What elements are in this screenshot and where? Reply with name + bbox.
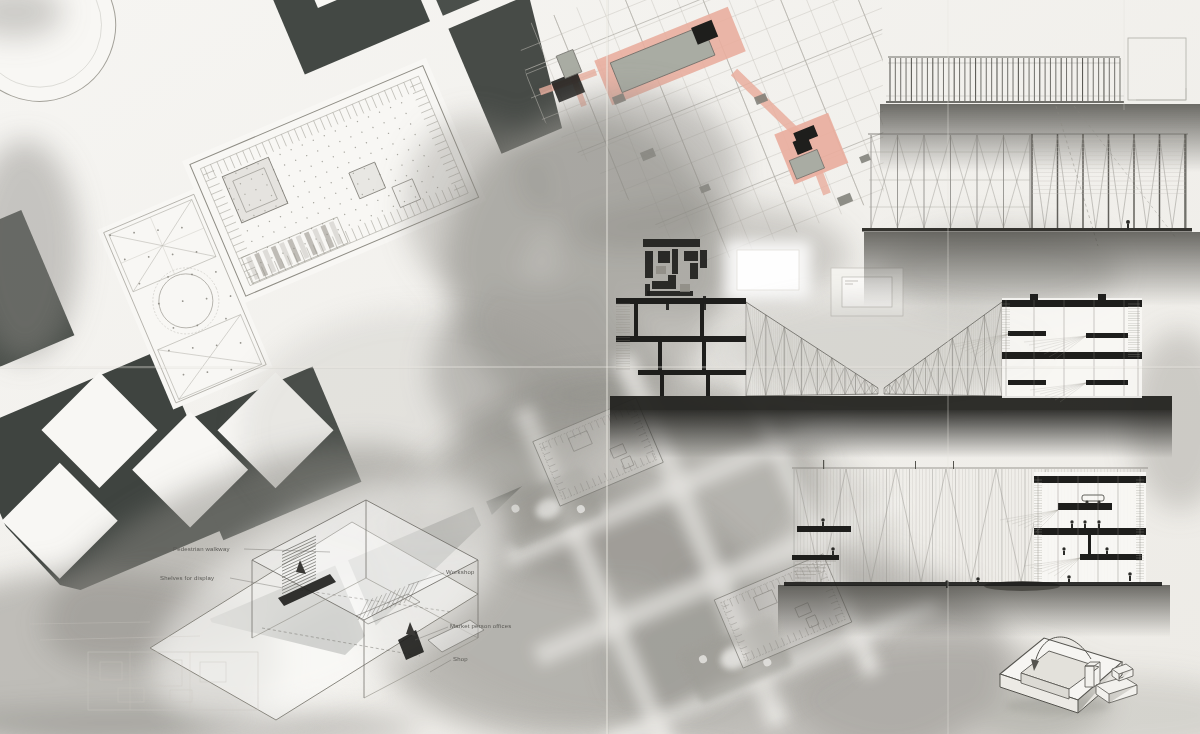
plan-fragment-block: [658, 251, 670, 263]
figure-body: [1068, 579, 1070, 584]
floor-slab: [1034, 528, 1146, 535]
figure-body: [822, 522, 824, 527]
floor-slab: [1058, 503, 1112, 510]
figure-head: [1067, 575, 1071, 579]
smoke-blob: [405, 115, 545, 295]
column: [702, 342, 706, 370]
roof-tick: [953, 461, 954, 469]
roof-slab: [1002, 300, 1142, 307]
ground-band: [610, 396, 1172, 410]
figure-head: [976, 577, 980, 581]
presentation-board: Pedestrian walkway Shelves for display W…: [0, 0, 1200, 734]
figure-head: [1097, 520, 1100, 523]
figure-head: [1083, 520, 1086, 523]
plan-fragment-block: [652, 281, 668, 289]
plan-fragment-block: [672, 249, 678, 274]
figure-head: [1062, 547, 1065, 550]
figure-head: [1128, 572, 1132, 576]
figure-body: [1098, 524, 1100, 528]
ground-line: [784, 582, 1162, 586]
floor-slab: [1086, 380, 1128, 385]
plan-fragment-block: [668, 275, 676, 289]
figure-head: [1105, 547, 1108, 550]
white-panel: [737, 250, 799, 290]
plan-fragment-block: [645, 251, 653, 278]
floor-slab: [616, 298, 746, 304]
figure-body: [832, 551, 834, 556]
plan-fragment-block: [690, 263, 698, 279]
axon-label-pedestrian-walkway: Pedestrian walkway: [173, 546, 230, 552]
floor-slab: [1008, 380, 1046, 385]
plan-fragment-block: [684, 251, 698, 261]
column: [700, 304, 704, 338]
floor-slab: [1002, 352, 1142, 359]
section-smoke: [710, 300, 1050, 400]
floor-slab: [638, 370, 746, 375]
plan-fragment-grey: [656, 266, 666, 274]
plan-fragment-grey: [680, 284, 690, 292]
floor-slab: [616, 336, 746, 342]
roof-slab: [1034, 476, 1146, 483]
board-drawing: Pedestrian walkway Shelves for display W…: [0, 0, 1200, 734]
figure-body: [977, 581, 979, 586]
ground-line: [862, 228, 1192, 232]
ground-shadow: [778, 585, 1170, 637]
figure-body: [1129, 576, 1131, 581]
slab: [792, 555, 839, 560]
figure-head: [1070, 520, 1073, 523]
figure-body: [1063, 551, 1065, 555]
axon-label-market-offices: Market person offices: [450, 623, 511, 629]
plan-fragment-block: [643, 239, 700, 247]
axon-label-shelves-display: Shelves for display: [160, 575, 214, 581]
plan-fragment-block: [700, 250, 707, 268]
plan-fragment-block: [645, 284, 650, 296]
car-wheel: [1085, 500, 1088, 503]
figure-head: [831, 547, 835, 551]
figure-body: [1071, 524, 1073, 528]
roof-nub: [1098, 294, 1106, 300]
ground-shadow: [880, 104, 1200, 172]
figure-head: [1126, 220, 1130, 224]
column: [1088, 535, 1091, 554]
figure-head: [821, 518, 825, 522]
figure-body: [1127, 224, 1129, 230]
figure-body: [1084, 524, 1086, 528]
roof-tick: [915, 461, 916, 469]
floor-slab: [1080, 554, 1142, 560]
roof-nub: [1030, 294, 1038, 300]
roof-tick: [823, 460, 824, 469]
column: [634, 304, 638, 338]
column: [706, 375, 710, 396]
column: [658, 342, 662, 370]
ground-fade: [610, 410, 1172, 458]
floor-slab: [1086, 333, 1128, 338]
axon-label-workshop: Workshop: [446, 569, 475, 575]
column: [660, 375, 664, 396]
figure-body: [1106, 551, 1108, 555]
floor-slab: [1008, 331, 1046, 336]
axon-label-shop: Shop: [453, 656, 468, 662]
